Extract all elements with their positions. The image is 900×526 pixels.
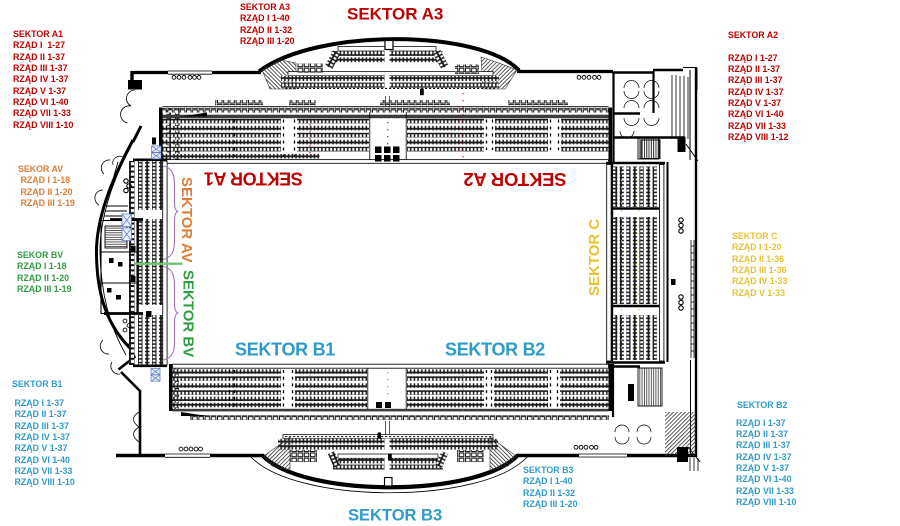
svg-text:SEKTOR AV: SEKTOR AV [178,177,195,263]
svg-text:SEKTOR BV: SEKTOR BV [180,270,197,357]
svg-text:SEKTOR A1: SEKTOR A1 [204,169,303,189]
svg-text:SEKTOR A3: SEKTOR A3 [347,5,443,24]
svg-text:SEKTOR B1: SEKTOR B1 [235,340,335,360]
svg-text:SEKTOR B2: SEKTOR B2 [445,340,545,360]
svg-text:SEKTOR C: SEKTOR C [586,219,603,296]
svg-text:SEKTOR B3: SEKTOR B3 [348,507,442,525]
svg-text:SEKTOR A2: SEKTOR A2 [463,169,566,190]
